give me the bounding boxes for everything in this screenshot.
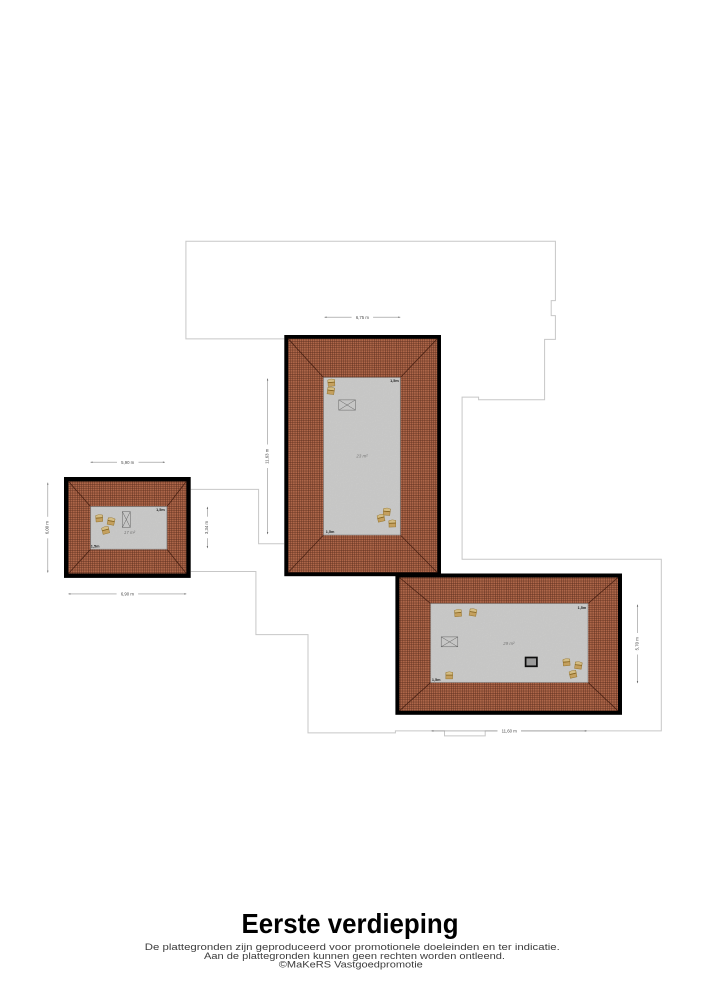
svg-text:©MaKeRS Vastgoedpromotie: ©MaKeRS Vastgoedpromotie — [279, 960, 423, 970]
svg-text:Eerste verdieping: Eerste verdieping — [242, 908, 459, 939]
svg-text:11,63 m: 11,63 m — [264, 448, 269, 464]
svg-text:17 m²: 17 m² — [124, 530, 136, 535]
svg-text:6,00 m: 6,00 m — [45, 521, 50, 535]
svg-text:29 m²: 29 m² — [502, 641, 515, 646]
svg-text:1,5m: 1,5m — [156, 508, 165, 512]
svg-text:6,90 m: 6,90 m — [121, 592, 135, 597]
svg-text:1,5m: 1,5m — [432, 678, 441, 682]
svg-text:1,5m: 1,5m — [91, 544, 100, 548]
svg-text:5,90 m: 5,90 m — [121, 460, 135, 465]
svg-text:23 m²: 23 m² — [355, 454, 368, 459]
svg-text:1,5m: 1,5m — [390, 379, 399, 383]
svg-text:5,70 m: 5,70 m — [634, 637, 639, 651]
svg-text:6,75 m: 6,75 m — [356, 315, 370, 320]
svg-text:11,60 m: 11,60 m — [502, 729, 518, 734]
svg-text:1,5m: 1,5m — [578, 606, 587, 610]
svg-text:1,5m: 1,5m — [326, 530, 335, 534]
svg-text:3,34 m: 3,34 m — [204, 521, 209, 535]
